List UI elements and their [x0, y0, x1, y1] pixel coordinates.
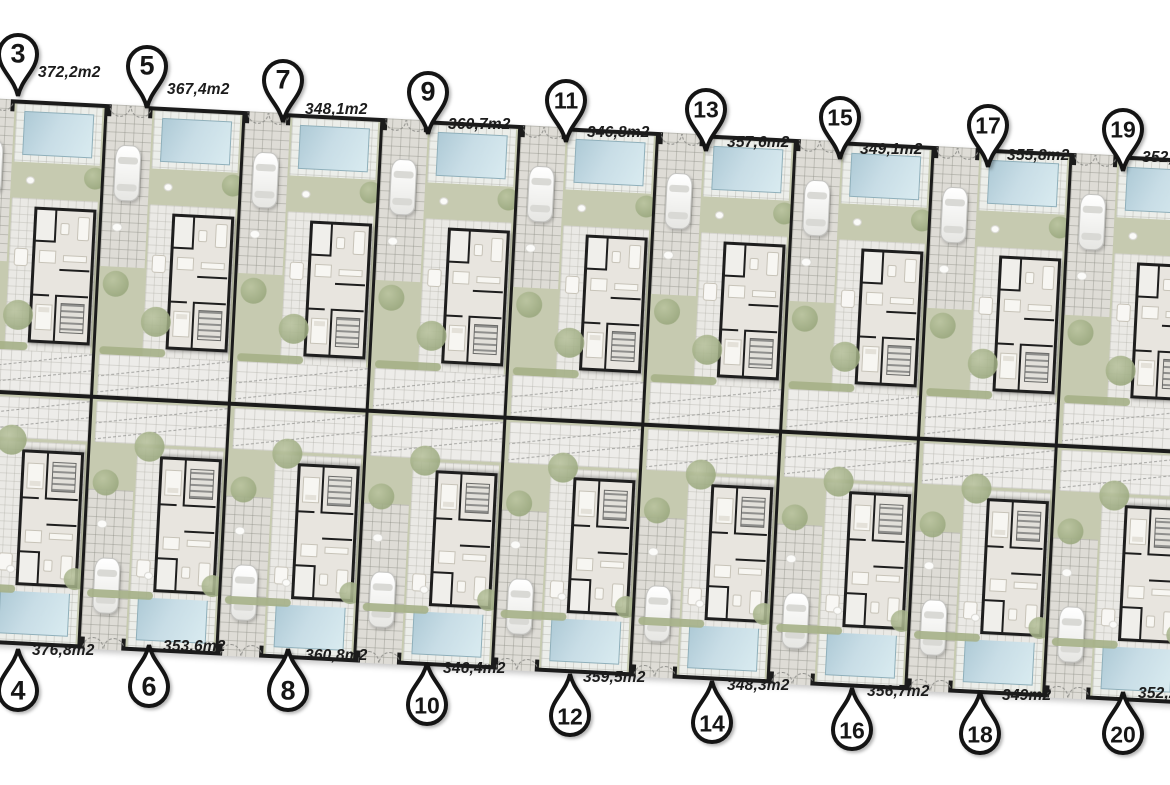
svg-text:3: 3 [10, 39, 25, 69]
plot-pin-9[interactable]: 9 [405, 68, 451, 136]
svg-text:6: 6 [141, 672, 156, 702]
svg-text:10: 10 [414, 693, 440, 719]
plot-area-label: 359,5m2 [583, 669, 646, 687]
site-plan-canvas: 3372,2m25367,4m27348,1m29360,7m211346,8m… [0, 0, 1170, 785]
plot-area-label: 353,6m2 [163, 638, 226, 656]
svg-text:13: 13 [693, 97, 719, 123]
plot-area-label: 356,7m2 [867, 683, 930, 701]
pin-layer: 3372,2m25367,4m27348,1m29360,7m211346,8m… [0, 0, 1170, 785]
plot-pin-13[interactable]: 13 [683, 85, 729, 153]
plot-area-label: 352,2m2 [1138, 685, 1170, 703]
plot-pin-3[interactable]: 3 [0, 30, 41, 98]
plot-pin-17[interactable]: 17 [965, 101, 1011, 169]
svg-text:18: 18 [967, 722, 993, 748]
plot-area-label: 349,1m2 [860, 141, 923, 159]
svg-text:11: 11 [554, 88, 579, 114]
plot-area-label: 357,6m2 [727, 134, 790, 152]
plot-area-label: 349m2 [1002, 687, 1051, 705]
plot-pin-19[interactable]: 19 [1100, 105, 1146, 173]
plot-pin-15[interactable]: 15 [817, 93, 863, 161]
plot-area-label: 346,8m2 [587, 124, 650, 142]
svg-text:5: 5 [139, 51, 154, 81]
svg-text:17: 17 [975, 113, 1001, 139]
svg-text:9: 9 [420, 77, 435, 107]
plot-pin-18[interactable]: 18 [957, 690, 1003, 758]
plot-area-label: 367,4m2 [167, 81, 230, 99]
svg-text:7: 7 [275, 65, 290, 95]
svg-text:16: 16 [839, 718, 865, 744]
svg-text:14: 14 [699, 711, 725, 737]
svg-text:12: 12 [557, 704, 583, 730]
plot-area-label: 360,8m2 [305, 647, 368, 665]
svg-text:20: 20 [1110, 722, 1136, 748]
plot-area-label: 376,8m2 [32, 642, 95, 660]
svg-text:4: 4 [10, 676, 25, 706]
plot-area-label: 372,2m2 [38, 64, 101, 82]
svg-text:15: 15 [827, 105, 853, 131]
plot-area-label: 360,7m2 [448, 116, 511, 134]
svg-text:8: 8 [280, 676, 295, 706]
plot-area-label: 346,4m2 [443, 660, 506, 678]
plot-pin-5[interactable]: 5 [124, 42, 170, 110]
plot-area-label: 348,1m2 [305, 101, 368, 119]
plot-area-label: 355,8m2 [1007, 147, 1070, 165]
plot-area-label: 348,3m2 [727, 677, 790, 695]
svg-text:19: 19 [1110, 117, 1136, 143]
plot-pin-11[interactable]: 11 [543, 76, 589, 144]
plot-area-label: 352,6m2 [1142, 149, 1170, 167]
plot-pin-7[interactable]: 7 [260, 56, 306, 124]
